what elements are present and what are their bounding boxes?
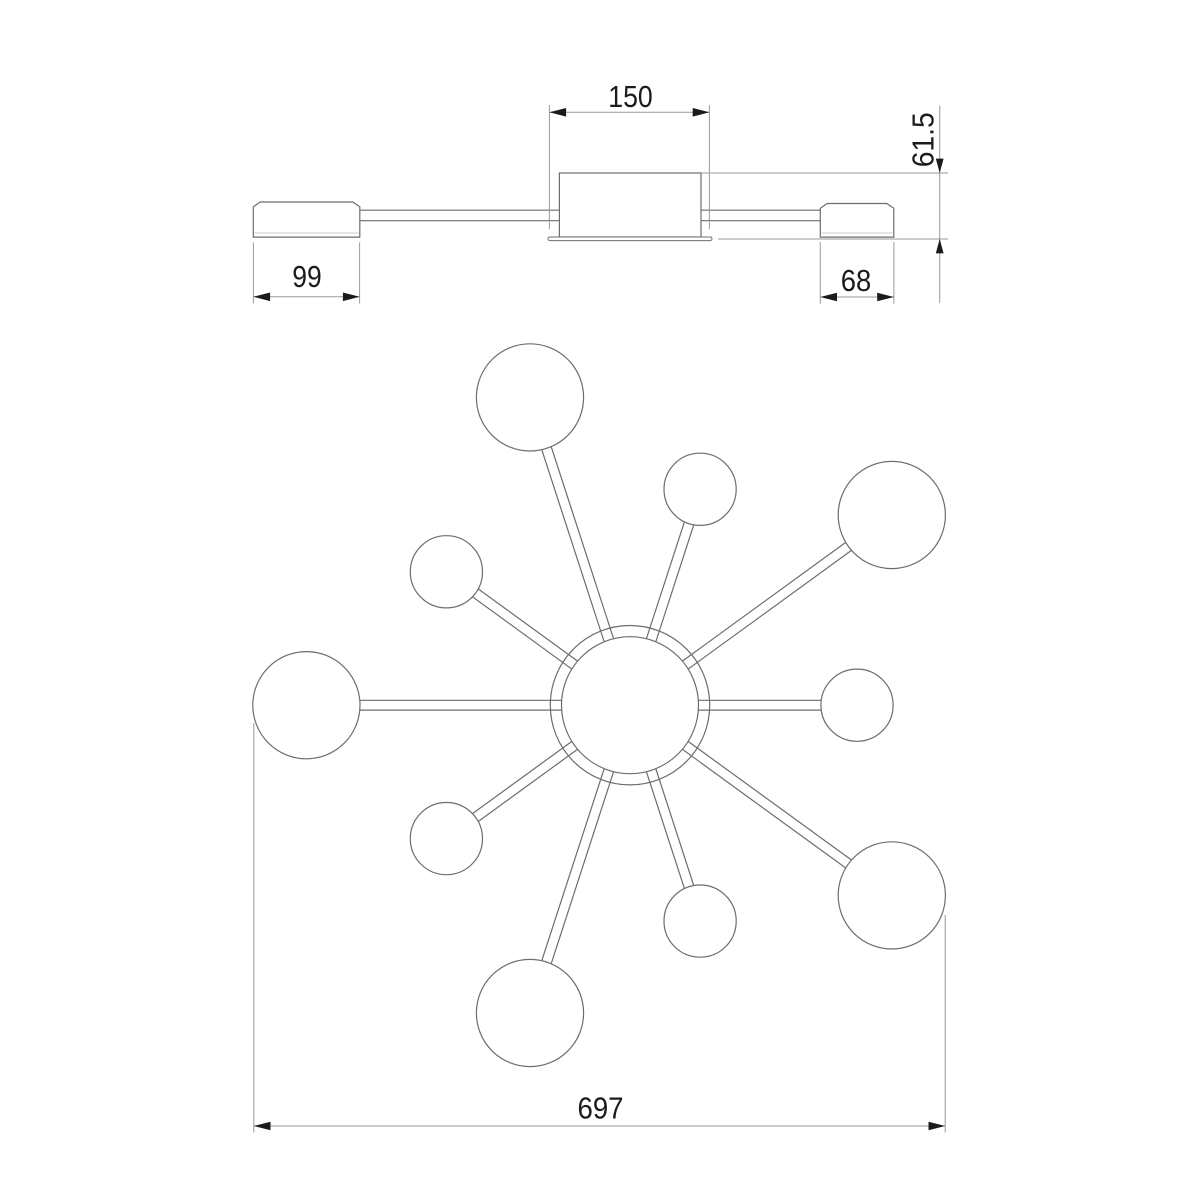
svg-text:697: 697 — [578, 1091, 624, 1126]
svg-text:99: 99 — [292, 259, 322, 294]
svg-text:68: 68 — [841, 263, 872, 298]
svg-text:61.5: 61.5 — [906, 112, 941, 167]
svg-text:150: 150 — [608, 79, 653, 114]
